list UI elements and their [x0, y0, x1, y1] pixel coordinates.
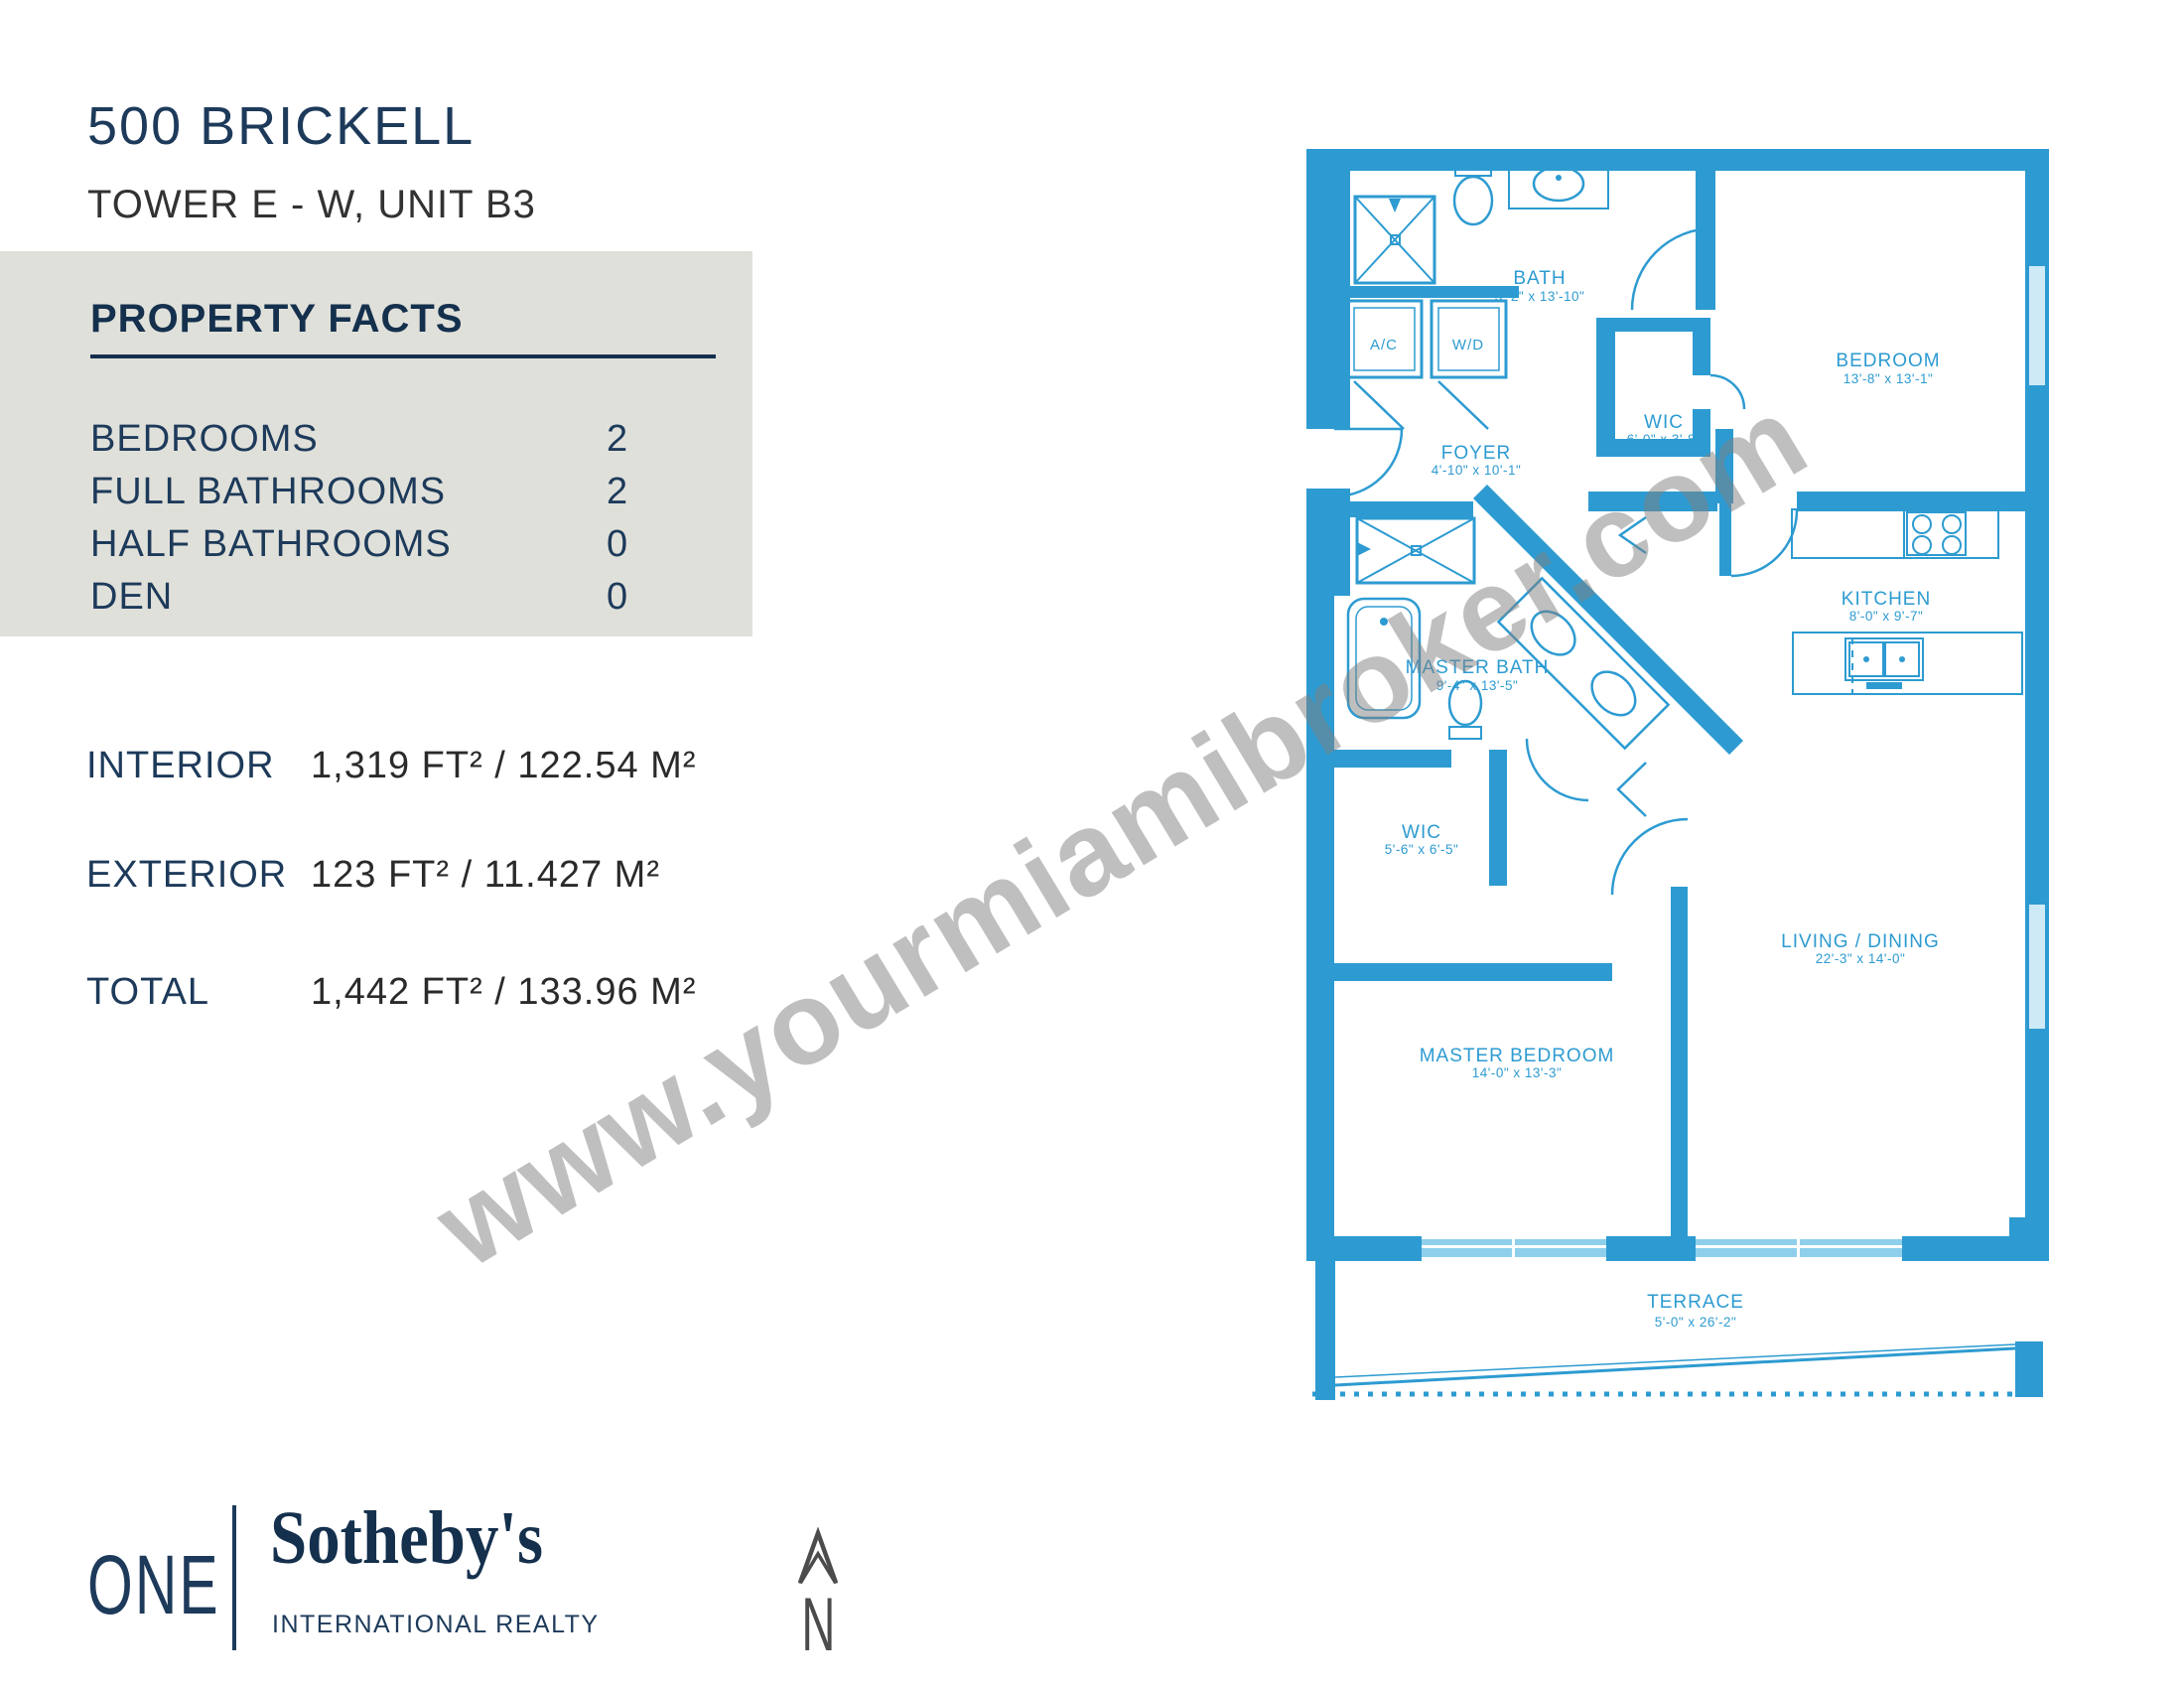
room-labels: BATH 5'-2" x 13'-10" BEDROOM 13'-8" x 13… — [1370, 268, 1941, 1330]
utility-label-wd: W/D — [1452, 337, 1484, 353]
floor-plan: BATH 5'-2" x 13'-10" BEDROOM 13'-8" x 13… — [1271, 139, 2065, 1400]
room-dims-living-dining: 22'-3" x 14'-0" — [1816, 951, 1906, 966]
walls — [1306, 149, 2049, 1400]
fact-row-half-bathrooms: HALF BATHROOMS 0 — [90, 523, 666, 566]
terrace-edge — [1312, 1344, 2043, 1394]
room-label-living-dining: LIVING / DINING — [1781, 931, 1940, 952]
fact-label: DEN — [90, 576, 173, 618]
room-dims-master-wic: 5'-6" x 6'-5" — [1385, 842, 1459, 857]
area-value: 1,442 FT² / 133.96 M² — [311, 971, 697, 1013]
area-row-total: TOTAL1,442 FT² / 133.96 M² — [86, 971, 697, 1014]
room-dims-kitchen: 8'-0" x 9'-7" — [1849, 609, 1924, 624]
room-label-wic: WIC — [1644, 412, 1684, 433]
heading-underline — [90, 354, 716, 358]
room-label-closet: CLOSET — [1612, 495, 1694, 516]
north-indicator: N — [794, 1527, 842, 1656]
fact-value: 0 — [607, 523, 628, 566]
brand-divider — [232, 1505, 236, 1650]
area-label: EXTERIOR — [86, 854, 311, 897]
fact-label: HALF BATHROOMS — [90, 523, 452, 565]
fixtures — [1347, 161, 2022, 816]
room-label-foyer: FOYER — [1441, 443, 1511, 464]
room-label-kitchen: KITCHEN — [1842, 589, 1931, 610]
page-title: 500 BRICKELL — [87, 95, 475, 157]
north-arrow-icon — [796, 1527, 840, 1589]
room-dims-bedroom: 13'-8" x 13'-1" — [1843, 371, 1934, 386]
room-label-master-wic: WIC — [1402, 822, 1441, 843]
fact-value: 2 — [607, 471, 628, 513]
fact-value: 0 — [607, 576, 628, 619]
room-dims-terrace: 5'-0" x 26'-2" — [1655, 1315, 1737, 1330]
property-facts-heading: PROPERTY FACTS — [90, 297, 464, 342]
area-row-interior: INTERIOR1,319 FT² / 122.54 M² — [86, 745, 697, 787]
room-label-terrace: TERRACE — [1647, 1292, 1744, 1313]
north-label: N — [801, 1595, 835, 1656]
room-dims-wic: 6'-0" x 3'-8" — [1627, 432, 1702, 447]
brand-sothebys: Sotheby's — [270, 1495, 543, 1582]
area-label: TOTAL — [86, 971, 311, 1014]
fact-row-full-bathrooms: FULL BATHROOMS 2 — [90, 471, 666, 513]
room-dims-master-bath: 9'-4" x 13'-5" — [1436, 678, 1519, 693]
room-dims-bath: 5'-2" x 13'-10" — [1495, 289, 1585, 304]
utility-label-ac: A/C — [1370, 337, 1398, 353]
page-subtitle: TOWER E - W, UNIT B3 — [87, 183, 536, 227]
room-label-master-bath: MASTER BATH — [1406, 657, 1550, 678]
room-dims-foyer: 4'-10" x 10'-1" — [1432, 463, 1522, 478]
room-label-bath: BATH — [1513, 268, 1566, 289]
room-label-master-bedroom: MASTER BEDROOM — [1420, 1046, 1615, 1066]
brand-tagline: INTERNATIONAL REALTY — [272, 1611, 600, 1639]
fact-row-den: DEN 0 — [90, 576, 666, 619]
fact-label: FULL BATHROOMS — [90, 471, 446, 512]
property-facts-box: PROPERTY FACTS BEDROOMS 2 FULL BATHROOMS… — [0, 251, 752, 636]
fact-row-bedrooms: BEDROOMS 2 — [90, 418, 666, 461]
brand-one: ONE — [87, 1537, 220, 1633]
area-value: 123 FT² / 11.427 M² — [311, 854, 660, 896]
area-value: 1,319 FT² / 122.54 M² — [311, 745, 697, 786]
room-label-bedroom: BEDROOM — [1836, 351, 1940, 371]
fact-label: BEDROOMS — [90, 418, 319, 460]
room-dims-master-bedroom: 14'-0" x 13'-3" — [1472, 1065, 1563, 1080]
windows-glass — [1422, 266, 2049, 1257]
fact-value: 2 — [607, 418, 628, 461]
area-row-exterior: EXTERIOR123 FT² / 11.427 M² — [86, 854, 660, 897]
area-label: INTERIOR — [86, 745, 311, 787]
flyer-page: 500 BRICKELL TOWER E - W, UNIT B3 PROPER… — [0, 0, 2184, 1688]
